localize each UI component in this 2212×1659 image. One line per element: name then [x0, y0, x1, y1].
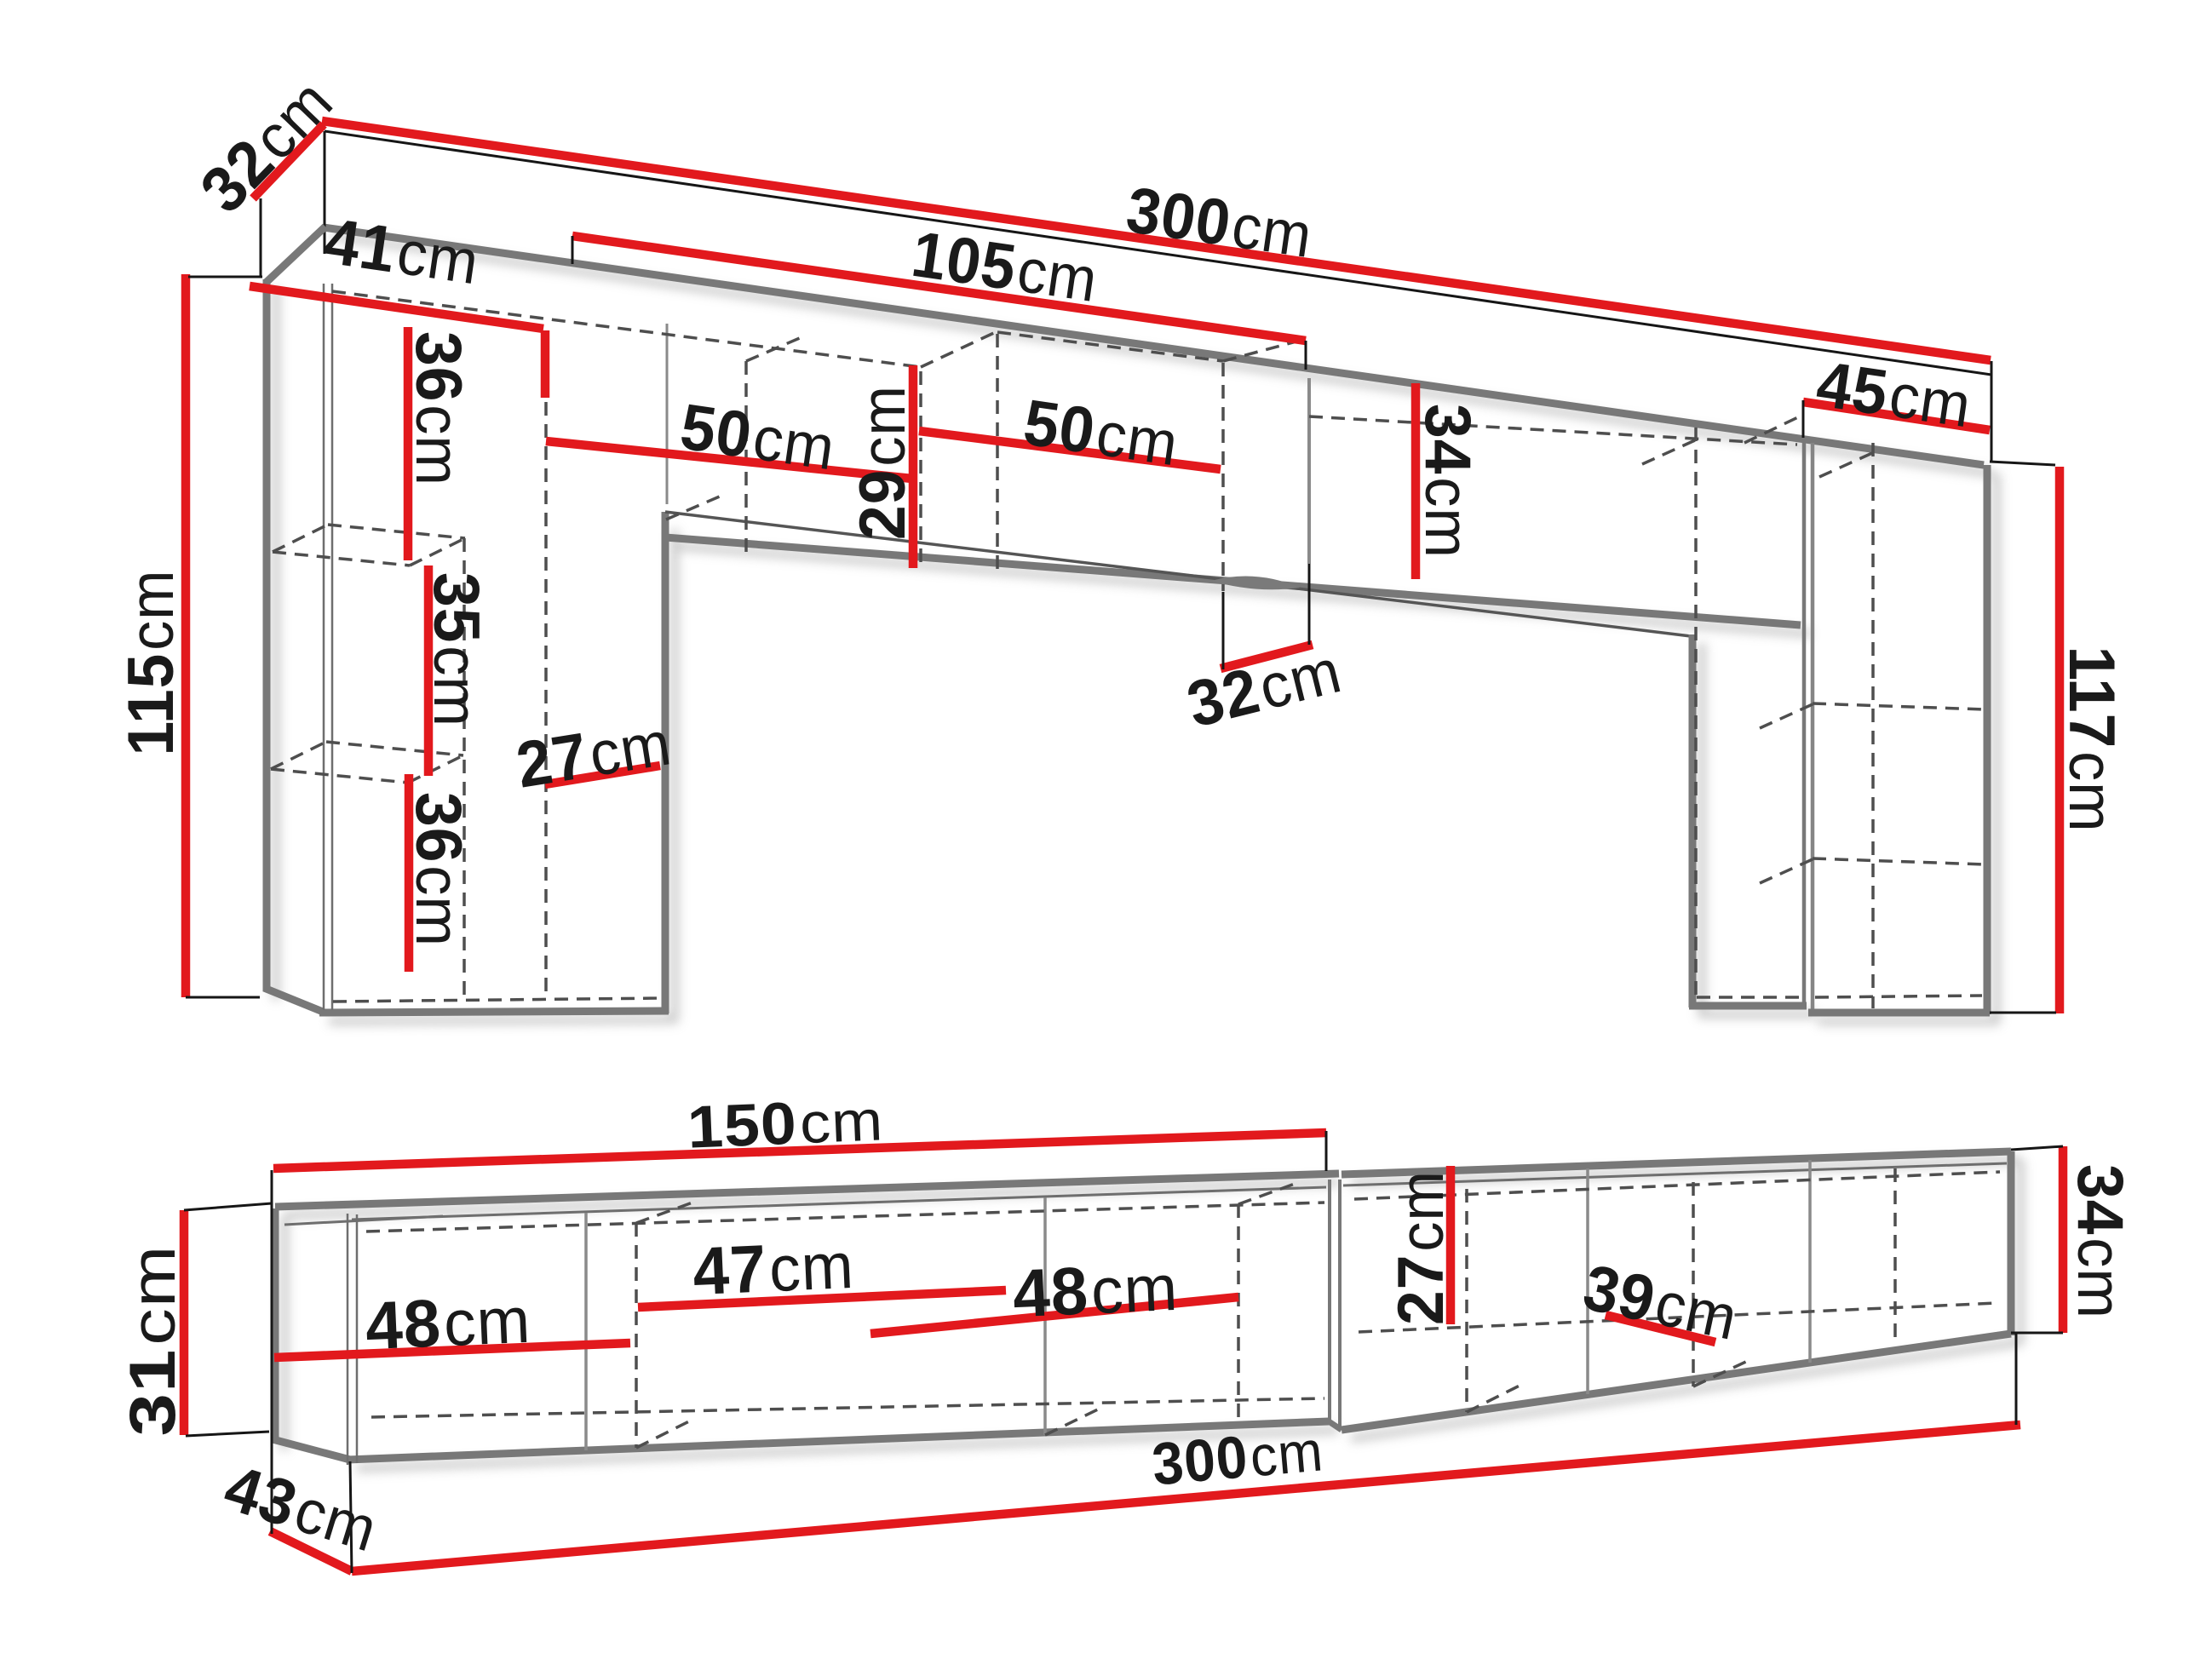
svg-text:117cm: 117cm [2055, 646, 2128, 833]
svg-text:36cm: 36cm [402, 331, 474, 486]
svg-text:35cm: 35cm [420, 572, 492, 727]
svg-text:34cm: 34cm [1411, 404, 1484, 559]
svg-text:34cm: 34cm [2064, 1164, 2136, 1319]
svg-text:48cm: 48cm [364, 1281, 532, 1363]
svg-text:47cm: 47cm [692, 1226, 856, 1309]
svg-text:115cm: 115cm [115, 570, 187, 756]
svg-text:27cm: 27cm [1385, 1170, 1457, 1325]
svg-text:150cm: 150cm [687, 1086, 885, 1161]
svg-text:29cm: 29cm [847, 385, 919, 540]
svg-text:31cm: 31cm [117, 1245, 189, 1437]
svg-text:48cm: 48cm [1011, 1249, 1180, 1331]
svg-text:36cm: 36cm [402, 792, 474, 947]
